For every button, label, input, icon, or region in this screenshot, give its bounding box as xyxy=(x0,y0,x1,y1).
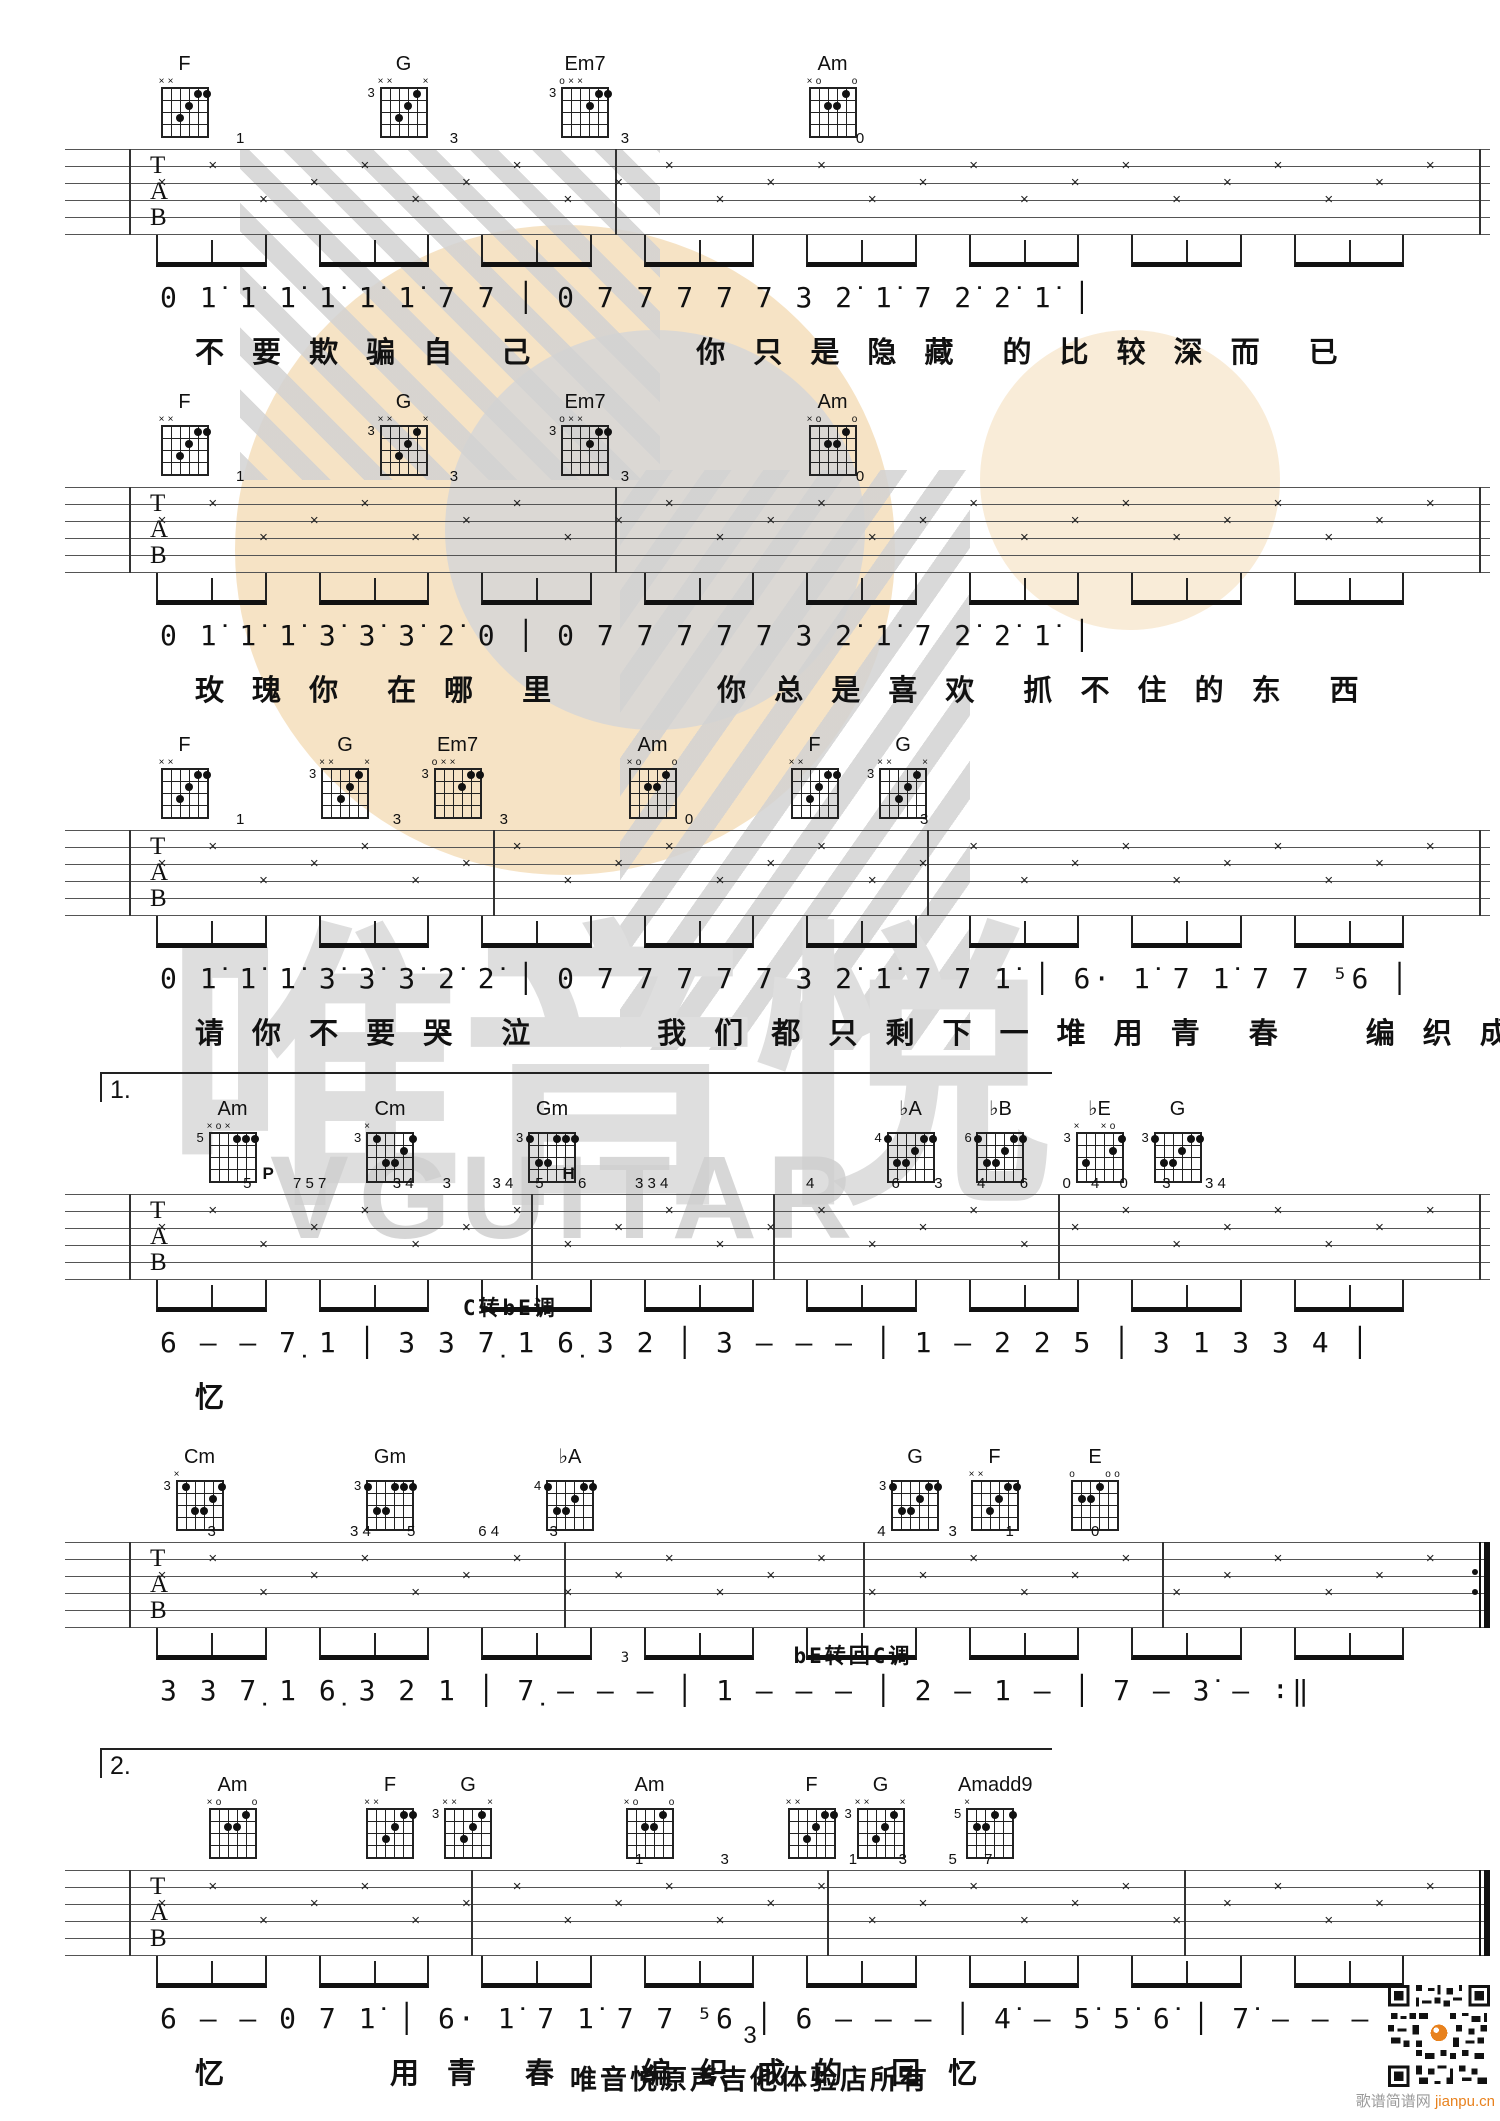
finger-dot xyxy=(571,1135,579,1143)
chord-base-fret: 4 xyxy=(875,1130,882,1145)
fret-position-number: 0 xyxy=(685,811,693,828)
muted-string-marker: × xyxy=(167,76,175,87)
chord-row: Cm×3Gm3♭A4G3F××Eooo xyxy=(0,1446,1500,1542)
beam-group xyxy=(644,916,755,948)
chord-string-markers: ××× xyxy=(381,414,427,425)
strum-x-mark: × xyxy=(563,873,572,888)
finger-dot xyxy=(986,1507,994,1515)
finger-dot xyxy=(803,1835,811,1843)
finger-dot xyxy=(1151,1135,1159,1143)
jianpu-melody-line: 6 — — 0 7 1̇ │ 6· 1̇ 7 1̇ 7 7 ⁵6 │ 6 — —… xyxy=(160,2002,1411,2035)
finger-dot xyxy=(400,1811,408,1819)
measure-barline xyxy=(129,149,131,235)
strum-x-mark: × xyxy=(361,1551,370,1566)
beam-group xyxy=(644,1280,755,1312)
beam-group xyxy=(156,573,267,605)
finger-dot xyxy=(382,1835,390,1843)
beam-group xyxy=(1131,1628,1242,1660)
chord-name-label: G xyxy=(871,734,935,757)
chord-string-markers xyxy=(367,1469,413,1480)
chord-base-fret: 3 xyxy=(1064,1130,1071,1145)
chord-name-label: F xyxy=(153,391,217,414)
muted-string-marker: × xyxy=(623,1797,631,1808)
strum-x-mark: × xyxy=(259,1237,268,1252)
strum-x-mark: × xyxy=(259,530,268,545)
strum-x-mark: × xyxy=(1223,175,1232,190)
beam-group xyxy=(1294,235,1405,267)
finger-dot xyxy=(373,1135,381,1143)
chord-string-markers xyxy=(547,1469,593,1480)
tab-clef-letter: B xyxy=(150,205,167,230)
finger-dot xyxy=(185,440,193,448)
muted-string-marker: × xyxy=(977,1469,985,1480)
strum-x-mark: × xyxy=(259,192,268,207)
chord-name-label: Am xyxy=(621,734,685,757)
finger-dot xyxy=(1109,1147,1117,1155)
beam-group xyxy=(156,1628,267,1660)
finger-dot xyxy=(1087,1495,1095,1503)
open-string-marker: o xyxy=(1068,1469,1076,1480)
strum-x-mark: × xyxy=(208,1879,217,1894)
chord-name-label: E xyxy=(1063,1446,1127,1469)
chord-name-label: Am xyxy=(801,391,865,414)
strum-x-mark: × xyxy=(310,856,319,871)
chord-diagram: F×× xyxy=(783,734,847,819)
strum-x-mark: × xyxy=(462,513,471,528)
finger-dot xyxy=(662,771,670,779)
measure-barline xyxy=(1184,1870,1186,1956)
open-string-marker: o xyxy=(851,76,859,87)
strum-x-mark: × xyxy=(614,1896,623,1911)
finger-dot xyxy=(806,795,814,803)
fret-position-number: 3 4 xyxy=(1205,1175,1226,1192)
chord-name-label: G xyxy=(372,53,436,76)
tab-staff: TAB××××××××××××××××××××××××××131357 xyxy=(65,1870,1490,1956)
strum-x-mark: × xyxy=(1172,192,1181,207)
finger-dot xyxy=(458,783,466,791)
fret-position-number: 1 xyxy=(849,1851,857,1868)
finger-dot xyxy=(1096,1483,1104,1491)
strum-x-mark: × xyxy=(1020,1237,1029,1252)
chord-diagram: ♭B6 xyxy=(968,1098,1032,1183)
muted-string-marker: × xyxy=(422,414,430,425)
strum-x-mark: × xyxy=(817,158,826,173)
muted-string-marker: × xyxy=(576,76,584,87)
beam-group xyxy=(156,1956,267,1988)
strum-x-mark: × xyxy=(614,856,623,871)
final-barline xyxy=(1484,1870,1490,1956)
beam-group xyxy=(156,235,267,267)
fret-position-number: 6 xyxy=(1020,1175,1028,1192)
finger-dot xyxy=(176,452,184,460)
fret-position-number: 5 xyxy=(949,1851,957,1868)
strum-x-mark: × xyxy=(462,1896,471,1911)
strum-x-mark: × xyxy=(513,496,522,511)
beam-group xyxy=(319,235,430,267)
muted-string-marker: × xyxy=(963,1797,971,1808)
muted-string-marker: × xyxy=(788,757,796,768)
chord-string-markers: ×oo xyxy=(810,76,856,87)
strum-x-mark: × xyxy=(665,496,674,511)
muted-string-marker: × xyxy=(806,76,814,87)
fret-position-number: 3 3 4 xyxy=(635,1175,668,1192)
strum-x-mark: × xyxy=(1172,1913,1181,1928)
muted-string-marker: × xyxy=(1100,1121,1108,1132)
chord-grid: 3 xyxy=(380,425,428,476)
chord-base-fret: 5 xyxy=(197,1130,204,1145)
strum-x-mark: × xyxy=(1172,530,1181,545)
finger-dot xyxy=(562,1135,570,1143)
finger-dot xyxy=(974,1135,982,1143)
strum-x-mark: × xyxy=(919,1568,928,1583)
finger-dot xyxy=(224,1823,232,1831)
strum-x-mark: × xyxy=(208,1203,217,1218)
measure-barline xyxy=(129,487,131,573)
fret-position-number: 3 xyxy=(443,1175,451,1192)
finger-dot xyxy=(911,1147,919,1155)
finger-dot xyxy=(203,428,211,436)
strum-x-mark: × xyxy=(361,158,370,173)
strum-x-mark: × xyxy=(716,192,725,207)
muted-string-marker: × xyxy=(797,757,805,768)
fret-position-number: 4 xyxy=(1091,1175,1099,1192)
strum-x-mark: × xyxy=(817,839,826,854)
measure-barline xyxy=(863,1542,865,1628)
finger-dot xyxy=(1160,1159,1168,1167)
chord-string-markers: × xyxy=(367,1121,413,1132)
chord-base-fret: 3 xyxy=(368,423,375,438)
strum-x-mark: × xyxy=(361,1203,370,1218)
chord-string-markers: ×× xyxy=(789,1797,835,1808)
chord-grid: 3 xyxy=(891,1480,939,1531)
chord-string-markers: ×oo xyxy=(630,757,676,768)
strum-x-mark: × xyxy=(1426,496,1435,511)
rhythm-beams xyxy=(130,916,1430,948)
fret-position-number: 1 xyxy=(236,130,244,147)
finger-dot xyxy=(409,1135,417,1143)
fret-position-number: 3 xyxy=(949,1523,957,1540)
strum-x-mark: × xyxy=(1375,513,1384,528)
chord-grid: 3 xyxy=(444,1808,492,1859)
finger-dot xyxy=(176,795,184,803)
finger-dot xyxy=(1004,1483,1012,1491)
strum-x-mark: × xyxy=(513,158,522,173)
fret-position-number: 1 xyxy=(635,1851,643,1868)
chord-string-markers: ×oo xyxy=(627,1797,673,1808)
chord-name-label: G xyxy=(313,734,377,757)
finger-dot xyxy=(895,795,903,803)
jianpu-melody-line: 6 — — 7̣ 1 │ 3 3 7̣ 1 6̣ 3 2 │ 3 — — — │… xyxy=(160,1326,1371,1359)
beam-group xyxy=(319,1280,430,1312)
measure-barline xyxy=(615,487,617,573)
chord-name-label: F xyxy=(153,53,217,76)
beam-group xyxy=(806,1956,917,1988)
strum-x-mark: × xyxy=(1071,1220,1080,1235)
finger-dot xyxy=(824,771,832,779)
finger-dot xyxy=(553,1135,561,1143)
measure-barline xyxy=(1479,487,1481,573)
chord-name-label: Em7 xyxy=(426,734,490,757)
muted-string-marker: × xyxy=(363,1797,371,1808)
finger-dot xyxy=(1169,1159,1177,1167)
repeat-dot xyxy=(1472,1589,1478,1595)
beam-group xyxy=(644,1628,755,1660)
muted-string-marker: × xyxy=(567,414,575,425)
lyrics-line: 忆 用 青 春 编 织 成 的 回 忆 xyxy=(195,2050,987,2092)
strum-x-mark: × xyxy=(1223,1220,1232,1235)
chord-string-markers: ×o× xyxy=(210,1121,256,1132)
chord-name-label: G xyxy=(372,391,436,414)
finger-dot xyxy=(251,1135,259,1143)
strum-x-mark: × xyxy=(1274,158,1283,173)
finger-dot xyxy=(992,1159,1000,1167)
strum-x-mark: × xyxy=(1375,1896,1384,1911)
chord-diagram: Cm×3 xyxy=(168,1446,232,1531)
finger-dot xyxy=(1009,1811,1017,1819)
fret-position-number: 5 xyxy=(407,1523,415,1540)
strum-x-mark: × xyxy=(969,496,978,511)
strum-x-mark: × xyxy=(158,513,167,528)
finger-dot xyxy=(395,452,403,460)
chord-grid xyxy=(788,1808,836,1859)
strum-x-mark: × xyxy=(411,873,420,888)
finger-dot xyxy=(194,428,202,436)
fret-position-number: 3 xyxy=(450,130,458,147)
strum-x-mark: × xyxy=(1121,839,1130,854)
beam-group xyxy=(1131,916,1242,948)
chord-grid xyxy=(161,425,209,476)
strum-x-mark: × xyxy=(716,530,725,545)
rhythm-beams xyxy=(130,573,1430,605)
chord-grid xyxy=(626,1808,674,1859)
chord-grid: 3 xyxy=(857,1808,905,1859)
chord-string-markers: ×× xyxy=(972,1469,1018,1480)
tab-staff: TAB××××××××××××××××××××××××××1330 xyxy=(65,487,1490,573)
finger-dot xyxy=(203,90,211,98)
chord-grid xyxy=(366,1808,414,1859)
strum-x-mark: × xyxy=(817,1879,826,1894)
chord-base-fret: 3 xyxy=(549,423,556,438)
chord-diagram: Am×oo xyxy=(801,391,865,476)
chord-string-markers xyxy=(529,1121,575,1132)
beam-group xyxy=(806,1280,917,1312)
finger-dot xyxy=(400,1483,408,1491)
strum-x-mark: × xyxy=(1071,513,1080,528)
chord-name-label: Cm xyxy=(168,1446,232,1469)
strum-x-mark: × xyxy=(1172,1585,1181,1600)
finger-dot xyxy=(535,1159,543,1167)
strum-x-mark: × xyxy=(919,1896,928,1911)
strum-x-mark: × xyxy=(158,1568,167,1583)
strum-x-mark: × xyxy=(1223,856,1232,871)
chord-name-label: Amadd9 xyxy=(958,1774,1022,1797)
chord-base-fret: 6 xyxy=(964,1130,971,1145)
fret-position-number: 3 xyxy=(934,1175,942,1192)
strum-x-mark: × xyxy=(310,513,319,528)
strum-x-mark: × xyxy=(1121,1203,1130,1218)
strum-x-mark: × xyxy=(1020,873,1029,888)
muted-string-marker: × xyxy=(167,414,175,425)
chord-diagram: F×× xyxy=(963,1446,1027,1531)
beam-group xyxy=(481,235,592,267)
beam-group xyxy=(319,1956,430,1988)
chord-diagram: ♭A4 xyxy=(538,1446,602,1531)
strum-x-mark: × xyxy=(969,1551,978,1566)
chord-base-fret: 3 xyxy=(845,1806,852,1821)
beam-group xyxy=(156,916,267,948)
measure-barline xyxy=(1479,149,1481,235)
strum-x-mark: × xyxy=(1324,192,1333,207)
chord-string-markers xyxy=(977,1121,1023,1132)
strum-x-mark: × xyxy=(1426,1551,1435,1566)
open-string-marker: o xyxy=(632,1797,640,1808)
tab-system: 2.Am×ooF××G×××3Am×ooF××G×××3Amadd9×5TAB×… xyxy=(0,1748,1500,2093)
finger-dot xyxy=(991,1811,999,1819)
chord-name-label: F xyxy=(780,1774,844,1797)
chord-grid: 3 xyxy=(434,768,482,819)
measure-barline xyxy=(927,830,929,916)
strum-x-mark: × xyxy=(1020,1913,1029,1928)
chord-string-markers: ×× xyxy=(162,76,208,87)
chord-base-fret: 3 xyxy=(309,766,316,781)
finger-dot xyxy=(571,1495,579,1503)
finger-dot xyxy=(595,428,603,436)
strum-x-mark: × xyxy=(361,496,370,511)
chord-name-label: G xyxy=(436,1774,500,1797)
strum-x-mark: × xyxy=(310,1568,319,1583)
finger-dot xyxy=(460,1835,468,1843)
chord-name-label: G xyxy=(849,1774,913,1797)
strum-x-mark: × xyxy=(868,873,877,888)
finger-dot xyxy=(185,102,193,110)
chord-grid: 3 xyxy=(176,1480,224,1531)
finger-dot xyxy=(1118,1135,1126,1143)
beam-group xyxy=(319,573,430,605)
strum-x-mark: × xyxy=(462,1568,471,1583)
strum-x-mark: × xyxy=(259,1913,268,1928)
fret-position-number: 0 xyxy=(1120,1175,1128,1192)
beam-group xyxy=(969,1628,1080,1660)
finger-dot xyxy=(821,1811,829,1819)
finger-dot xyxy=(842,90,850,98)
finger-dot xyxy=(413,90,421,98)
rhythm-beams xyxy=(130,1628,1430,1660)
finger-dot xyxy=(478,1811,486,1819)
chord-diagram: Amadd9×5 xyxy=(958,1774,1022,1859)
strum-x-mark: × xyxy=(1121,1551,1130,1566)
fret-position-number: 3 xyxy=(721,1851,729,1868)
finger-dot xyxy=(902,1159,910,1167)
finger-dot xyxy=(233,1823,241,1831)
muted-string-marker: × xyxy=(794,1797,802,1808)
fret-position-number: 1 xyxy=(236,468,244,485)
muted-string-marker: × xyxy=(386,76,394,87)
measure-barline xyxy=(1162,1542,1164,1628)
strum-x-mark: × xyxy=(310,1220,319,1235)
chord-string-markers: ×oo xyxy=(210,1797,256,1808)
chord-diagram: ♭A4 xyxy=(879,1098,943,1183)
finger-dot xyxy=(382,1507,390,1515)
open-string-marker: o xyxy=(1104,1469,1112,1480)
fret-position-number: 0 xyxy=(1091,1523,1099,1540)
finger-dot xyxy=(194,90,202,98)
beam-group xyxy=(806,573,917,605)
chord-name-label: Am xyxy=(201,1774,265,1797)
finger-dot xyxy=(476,771,484,779)
strum-x-mark: × xyxy=(969,1879,978,1894)
strum-x-mark: × xyxy=(1121,158,1130,173)
fret-position-number: 3 xyxy=(393,811,401,828)
tab-systems: F××G×××3Em7o××3Am×ooTAB×××××××××××××××××… xyxy=(0,0,1500,2121)
finger-dot xyxy=(242,1135,250,1143)
tab-staff: TAB××××××××××××××××××××××××××57 5 73 433… xyxy=(65,1194,1490,1280)
chord-diagram: G×××3 xyxy=(372,53,436,138)
chord-base-fret: 5 xyxy=(954,1806,961,1821)
tab-clef-letter: B xyxy=(150,886,167,911)
chord-name-label: ♭A xyxy=(538,1446,602,1469)
finger-dot xyxy=(604,428,612,436)
strum-x-mark: × xyxy=(462,856,471,871)
measure-barline xyxy=(471,1870,473,1956)
chord-name-label: Gm xyxy=(520,1098,584,1121)
strum-x-mark: × xyxy=(969,839,978,854)
strum-x-mark: × xyxy=(614,175,623,190)
finger-dot xyxy=(526,1135,534,1143)
finger-dot xyxy=(391,1483,399,1491)
beam-group xyxy=(969,916,1080,948)
finger-dot xyxy=(242,1811,250,1819)
finger-dot xyxy=(469,1823,477,1831)
strum-x-mark: × xyxy=(1121,1879,1130,1894)
strum-x-mark: × xyxy=(614,513,623,528)
strum-x-mark: × xyxy=(259,873,268,888)
strum-x-mark: × xyxy=(411,1913,420,1928)
finger-dot xyxy=(872,1835,880,1843)
strum-x-mark: × xyxy=(1324,1237,1333,1252)
open-string-marker: o xyxy=(671,757,679,768)
beam-group xyxy=(1294,1956,1405,1988)
measure-barline xyxy=(129,1870,131,1956)
finger-dot xyxy=(218,1483,226,1491)
beam-group xyxy=(1131,235,1242,267)
beam-group xyxy=(319,916,430,948)
muted-string-marker: × xyxy=(1073,1121,1081,1132)
strum-x-mark: × xyxy=(1071,856,1080,871)
lyrics-line: 玫 瑰 你 在 哪 里 你 总 是 喜 欢 抓 不 住 的 东 西 xyxy=(195,667,1369,709)
strum-x-mark: × xyxy=(1324,873,1333,888)
chord-grid: 3 xyxy=(1154,1132,1202,1183)
strum-x-mark: × xyxy=(1223,1568,1232,1583)
finger-dot xyxy=(659,1811,667,1819)
chord-grid xyxy=(809,87,857,138)
tab-system: F××G×××3Em7o××3Am×ooTAB×××××××××××××××××… xyxy=(0,385,1500,730)
finger-dot xyxy=(364,1483,372,1491)
chord-string-markers: ××× xyxy=(880,757,926,768)
strum-x-mark: × xyxy=(513,1879,522,1894)
chord-diagram: F×× xyxy=(153,53,217,138)
strum-x-mark: × xyxy=(969,158,978,173)
strum-x-mark: × xyxy=(1071,175,1080,190)
finger-dot xyxy=(589,1483,597,1491)
finger-dot xyxy=(203,771,211,779)
measure-barline xyxy=(1058,1194,1060,1280)
open-string-marker: o xyxy=(431,757,439,768)
measure-barline xyxy=(827,1870,829,1956)
muted-string-marker: × xyxy=(876,757,884,768)
finger-dot xyxy=(904,783,912,791)
beam-group xyxy=(156,1280,267,1312)
muted-string-marker: × xyxy=(450,1797,458,1808)
